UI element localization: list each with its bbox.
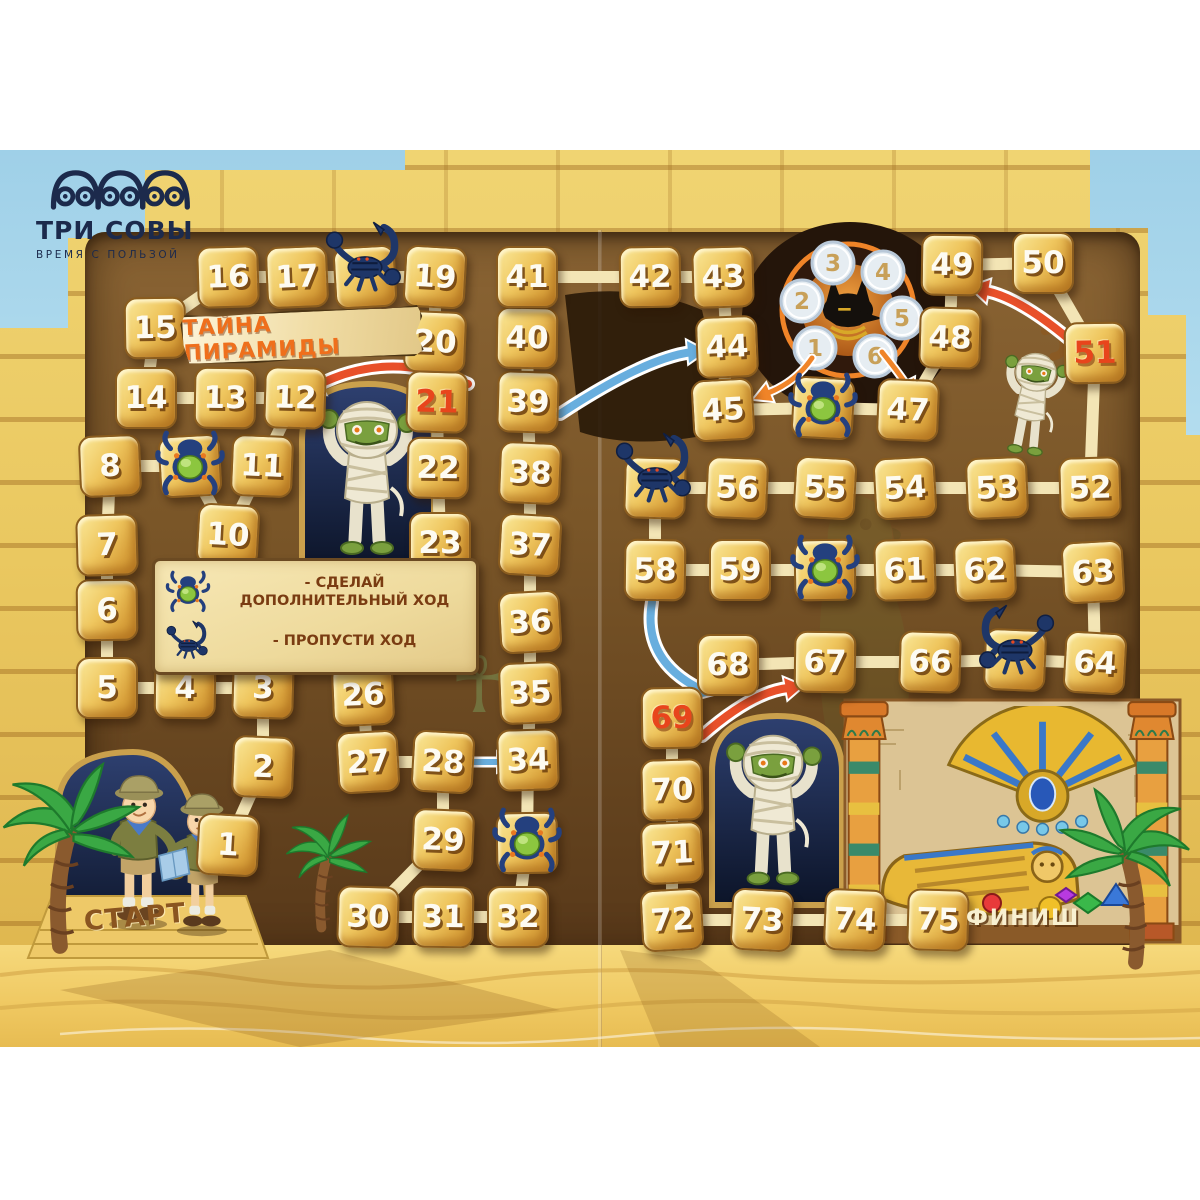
tile-52[interactable]: 52 [1058, 456, 1122, 520]
tile-number-12: 12 [273, 382, 317, 414]
tile-number-44: 44 [705, 331, 749, 364]
tile-number-14: 14 [124, 383, 167, 414]
tile-number-10: 10 [206, 518, 251, 551]
three-owls-icon [36, 160, 206, 214]
brand-logo: ТРИ СОВЫ ВРЕМЯ С ПОЛЬЗОЙ [36, 160, 251, 261]
tile-number-72: 72 [650, 903, 695, 936]
tile-74[interactable]: 74 [823, 888, 888, 953]
tile-28[interactable]: 28 [410, 729, 475, 794]
legend-row-skip-turn: - ПРОПУСТИ ХОД [165, 618, 466, 664]
tile-29[interactable]: 29 [411, 808, 476, 873]
tile-number-1: 1 [216, 829, 239, 861]
tile-number-64: 64 [1073, 646, 1118, 679]
tile-number-8: 8 [99, 450, 122, 482]
tile-41[interactable]: 41 [496, 246, 558, 308]
tile-15[interactable]: 15 [124, 297, 187, 360]
tile-number-4: 4 [174, 672, 196, 703]
brand-name: ТРИ СОВЫ [36, 216, 251, 245]
tile-17[interactable]: 17 [265, 245, 330, 310]
tile-51[interactable]: 51 [1064, 322, 1127, 385]
tile-7[interactable]: 7 [75, 513, 139, 577]
tile-number-73: 73 [740, 903, 785, 936]
tile-14[interactable]: 14 [115, 367, 177, 429]
tile-number-21: 21 [415, 386, 459, 418]
legend-box: - СДЕЛАЙ ДОПОЛНИТЕЛЬНЫЙ ХОД - ПРОПУСТИ Х… [152, 558, 479, 675]
tile-58[interactable]: 58 [624, 539, 687, 602]
tile-number-29: 29 [421, 824, 465, 857]
tile-40[interactable]: 40 [496, 307, 559, 370]
tile-45[interactable]: 45 [690, 377, 755, 442]
tile-number-62: 62 [963, 554, 1007, 587]
tile-22[interactable]: 22 [407, 437, 470, 500]
tile-57[interactable] [623, 456, 687, 520]
tile-9[interactable] [157, 433, 222, 498]
tile-60[interactable] [794, 539, 857, 602]
tile-38[interactable]: 38 [498, 441, 563, 506]
tile-number-68: 68 [706, 650, 749, 681]
tile-number-51: 51 [1073, 337, 1117, 369]
tile-1[interactable]: 1 [195, 812, 260, 877]
tile-number-61: 61 [883, 554, 927, 586]
tile-50[interactable]: 50 [1012, 232, 1074, 294]
tile-53[interactable]: 53 [965, 456, 1030, 521]
tile-65[interactable] [983, 628, 1048, 693]
tile-33[interactable] [496, 812, 559, 875]
tile-36[interactable]: 36 [497, 589, 562, 654]
tile-number-7: 7 [96, 529, 118, 561]
tile-number-40: 40 [505, 322, 549, 354]
tile-69[interactable]: 69 [641, 687, 704, 750]
tile-number-75: 75 [916, 904, 960, 936]
legend-row-extra-move: - СДЕЛАЙ ДОПОЛНИТЕЛЬНЫЙ ХОД [165, 569, 466, 615]
tile-39[interactable]: 39 [496, 370, 560, 434]
tile-number-13: 13 [203, 382, 247, 414]
tile-number-23: 23 [418, 528, 461, 559]
tile-number-42: 42 [628, 261, 672, 293]
tile-2[interactable]: 2 [231, 735, 296, 800]
tile-number-47: 47 [886, 394, 930, 427]
tile-35[interactable]: 35 [498, 661, 563, 726]
tile-59[interactable]: 59 [709, 539, 771, 601]
tile-44[interactable]: 44 [695, 315, 760, 380]
scarab-icon [165, 569, 211, 615]
scorpion-icon [165, 618, 211, 664]
tile-13[interactable]: 13 [194, 367, 257, 430]
tile-11[interactable]: 11 [230, 434, 295, 499]
tile-number-36: 36 [508, 605, 553, 638]
tile-number-5: 5 [96, 673, 118, 704]
tile-number-2: 2 [252, 751, 275, 783]
tile-18[interactable] [332, 244, 397, 309]
tile-number-63: 63 [1071, 555, 1116, 588]
tile-30[interactable]: 30 [336, 885, 400, 949]
tile-66[interactable]: 66 [898, 630, 962, 694]
tile-5[interactable]: 5 [76, 657, 138, 719]
finish-label: ФИНИШ [966, 906, 1086, 931]
tile-19[interactable]: 19 [402, 244, 467, 309]
tile-number-6: 6 [96, 594, 118, 625]
tile-21[interactable]: 21 [405, 370, 469, 434]
tile-number-15: 15 [133, 312, 177, 344]
tile-number-19: 19 [413, 260, 458, 293]
tile-34[interactable]: 34 [496, 728, 560, 792]
tile-number-70: 70 [650, 774, 694, 806]
tile-71[interactable]: 71 [640, 821, 705, 886]
tile-number-11: 11 [240, 450, 284, 483]
tile-6[interactable]: 6 [76, 579, 139, 642]
tile-number-71: 71 [650, 837, 694, 870]
tile-number-49: 49 [930, 249, 974, 281]
tile-55[interactable]: 55 [792, 455, 857, 520]
tile-number-74: 74 [833, 904, 877, 937]
legend-text-extra-move: - СДЕЛАЙ ДОПОЛНИТЕЛЬНЫЙ ХОД [223, 574, 466, 610]
tile-number-3: 3 [252, 672, 274, 704]
tile-number-58: 58 [633, 554, 677, 586]
tile-number-17: 17 [275, 261, 319, 294]
game-board-page: ☥ [0, 0, 1200, 1200]
tile-12[interactable]: 12 [263, 366, 327, 430]
tile-number-55: 55 [803, 471, 848, 504]
tile-56[interactable]: 56 [705, 456, 770, 521]
tile-number-27: 27 [346, 745, 391, 778]
tile-number-32: 32 [496, 902, 539, 933]
tile-67[interactable]: 67 [794, 631, 857, 694]
brand-tagline: ВРЕМЯ С ПОЛЬЗОЙ [36, 249, 251, 261]
tile-47[interactable]: 47 [876, 378, 941, 443]
tile-number-50: 50 [1021, 248, 1064, 279]
tile-72[interactable]: 72 [639, 887, 704, 952]
tile-number-54: 54 [883, 471, 928, 504]
tile-49[interactable]: 49 [921, 234, 984, 297]
tile-number-45: 45 [701, 393, 746, 426]
tile-number-30: 30 [346, 901, 390, 933]
tile-number-35: 35 [508, 677, 552, 710]
tile-number-66: 66 [908, 646, 952, 678]
tile-number-56: 56 [715, 472, 759, 505]
tile-number-52: 52 [1068, 472, 1112, 504]
tile-number-41: 41 [505, 262, 548, 293]
tile-68[interactable]: 68 [697, 634, 759, 696]
tile-27[interactable]: 27 [335, 729, 400, 794]
tile-62[interactable]: 62 [953, 538, 1018, 603]
tile-number-38: 38 [508, 457, 552, 490]
legend-text-skip-turn: - ПРОПУСТИ ХОД [223, 632, 466, 650]
tile-number-39: 39 [506, 386, 550, 418]
tile-37[interactable]: 37 [497, 512, 562, 577]
tile-75[interactable]: 75 [906, 888, 970, 952]
tile-number-28: 28 [421, 745, 466, 778]
tile-number-37: 37 [508, 528, 553, 561]
tile-42[interactable]: 42 [619, 246, 682, 309]
tile-70[interactable]: 70 [640, 758, 704, 822]
tile-31[interactable]: 31 [412, 886, 475, 949]
tile-number-16: 16 [206, 261, 250, 293]
tile-54[interactable]: 54 [872, 455, 937, 520]
tile-number-22: 22 [416, 452, 460, 484]
tile-number-48: 48 [928, 322, 972, 354]
tile-number-26: 26 [341, 679, 385, 712]
tile-number-59: 59 [718, 555, 761, 586]
tile-number-69: 69 [650, 702, 694, 734]
tile-63[interactable]: 63 [1060, 539, 1125, 604]
tile-32[interactable]: 32 [487, 886, 549, 948]
tile-number-43: 43 [701, 261, 745, 293]
tile-8[interactable]: 8 [78, 434, 143, 499]
tile-64[interactable]: 64 [1062, 630, 1127, 695]
tile-number-34: 34 [506, 744, 550, 776]
board-artwork: ☥ [0, 150, 1200, 1047]
tile-61[interactable]: 61 [873, 538, 937, 602]
tile-number-53: 53 [975, 472, 1019, 505]
tile-48[interactable]: 48 [918, 306, 982, 370]
tile-43[interactable]: 43 [691, 245, 755, 309]
tile-number-31: 31 [421, 901, 465, 933]
tile-73[interactable]: 73 [729, 887, 794, 952]
tile-46[interactable] [790, 375, 855, 440]
tile-number-67: 67 [803, 646, 847, 678]
